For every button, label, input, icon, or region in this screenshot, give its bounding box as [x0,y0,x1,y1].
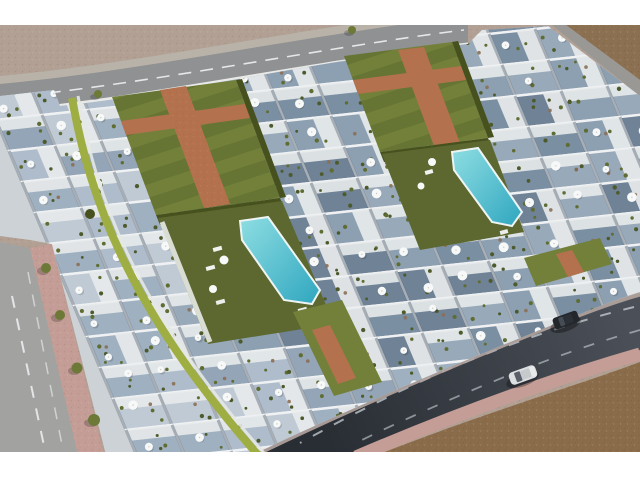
scene-canvas [0,0,640,480]
letterbox-bottom [0,452,640,480]
shrub [85,209,95,219]
letterbox-top [0,0,640,25]
screenshot-frame [0,0,640,480]
parasol [418,183,425,190]
parasol [220,256,229,265]
parasol [209,285,217,293]
parasol [428,158,436,166]
